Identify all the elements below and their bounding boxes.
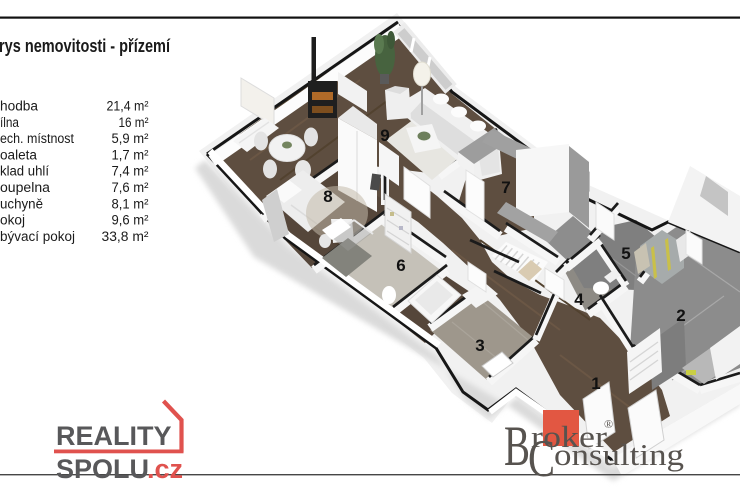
svg-text:7,6 m²: 7,6 m² (112, 180, 149, 195)
svg-text:33,8 m²: 33,8 m² (102, 229, 150, 244)
svg-text:8: 8 (323, 187, 332, 206)
svg-text:8,1 m²: 8,1 m² (112, 196, 149, 211)
svg-text:B: B (504, 415, 530, 478)
svg-text:3: 3 (475, 336, 484, 355)
svg-text:rys nemovitosti - přízemí: rys nemovitosti - přízemí (0, 36, 171, 56)
svg-text:uchyně: uchyně (0, 196, 43, 211)
svg-text:bývací pokoj: bývací pokoj (0, 229, 75, 244)
svg-text:1,7 m²: 1,7 m² (112, 147, 149, 162)
svg-text:16 m²: 16 m² (119, 115, 149, 130)
svg-text:4: 4 (574, 290, 584, 309)
svg-text:7,4 m²: 7,4 m² (112, 164, 149, 179)
svg-text:9,6 m²: 9,6 m² (112, 213, 149, 228)
svg-text:®: ® (604, 417, 613, 431)
svg-text:6: 6 (396, 256, 405, 275)
svg-text:REALITY: REALITY (56, 421, 172, 451)
svg-text:oupelna: oupelna (0, 180, 50, 195)
svg-text:onsulting: onsulting (554, 437, 684, 472)
svg-text:ech. místnost: ech. místnost (0, 131, 74, 146)
svg-text:C: C (528, 430, 555, 488)
svg-text:2: 2 (676, 306, 685, 325)
svg-text:klad uhlí: klad uhlí (0, 164, 49, 179)
svg-text:21,4 m²: 21,4 m² (107, 99, 149, 114)
svg-text:hodba: hodba (0, 99, 38, 114)
svg-text:oaleta: oaleta (0, 147, 37, 162)
svg-text:1: 1 (591, 374, 600, 393)
svg-text:5: 5 (621, 244, 630, 263)
svg-text:.cz: .cz (147, 454, 183, 484)
svg-text:7: 7 (501, 178, 510, 197)
svg-text:5,9 m²: 5,9 m² (112, 131, 149, 146)
svg-text:SPOLU: SPOLU (56, 454, 149, 484)
svg-text:okoj: okoj (0, 213, 25, 228)
svg-text:9: 9 (380, 126, 389, 145)
svg-text:ílna: ílna (0, 115, 19, 130)
